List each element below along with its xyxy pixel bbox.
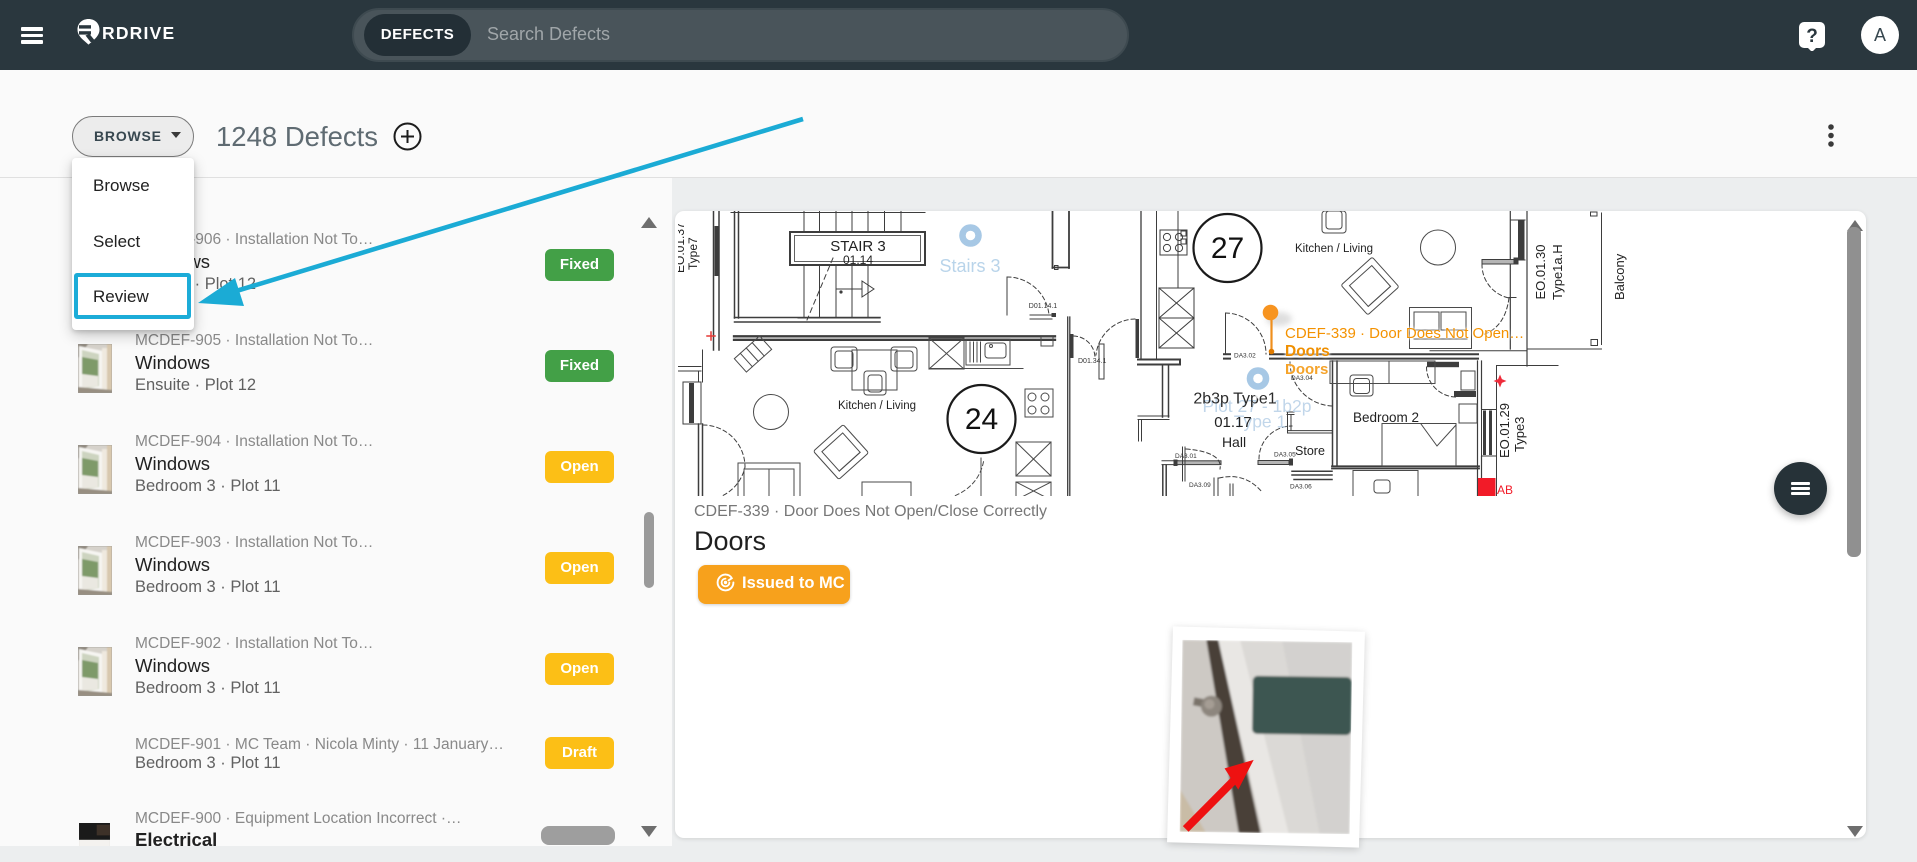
svg-text:Kitchen / Living: Kitchen / Living bbox=[1295, 243, 1373, 255]
svg-text:DA3.02: DA3.02 bbox=[1234, 353, 1256, 360]
svg-text:Type3: Type3 bbox=[1512, 417, 1527, 452]
svg-text:RDRIVE: RDRIVE bbox=[102, 23, 175, 43]
svg-text:DA3.06: DA3.06 bbox=[1290, 484, 1312, 491]
svg-text:?: ? bbox=[1806, 26, 1818, 47]
svg-text:Store: Store bbox=[1295, 444, 1325, 458]
svg-text:Doors: Doors bbox=[1285, 343, 1330, 360]
svg-text:D01.14.1: D01.14.1 bbox=[1029, 303, 1058, 310]
svg-text:Hall: Hall bbox=[1222, 434, 1246, 450]
svg-text:Bedroom 2: Bedroom 2 bbox=[1353, 410, 1419, 425]
svg-text:24: 24 bbox=[965, 403, 998, 436]
svg-text:01.14: 01.14 bbox=[843, 253, 873, 267]
svg-text:CDEF-339 · Door Does Not Open…: CDEF-339 · Door Does Not Open… bbox=[1285, 325, 1524, 342]
svg-text:DA3.05: DA3.05 bbox=[1274, 452, 1296, 459]
svg-text:Type1a.H: Type1a.H bbox=[1550, 244, 1565, 300]
svg-text:01.17: 01.17 bbox=[1214, 414, 1252, 431]
svg-text:Balcony: Balcony bbox=[1612, 253, 1627, 300]
svg-text:EO.01.29: EO.01.29 bbox=[1497, 403, 1512, 458]
svg-text:27: 27 bbox=[1211, 232, 1244, 265]
svg-text:AB: AB bbox=[1497, 483, 1513, 496]
svg-text:EO.01.30: EO.01.30 bbox=[1533, 245, 1548, 300]
svg-text:DA3.09: DA3.09 bbox=[1189, 482, 1211, 489]
svg-text:D01.34.1: D01.34.1 bbox=[1078, 358, 1107, 365]
svg-text:Stairs 3: Stairs 3 bbox=[939, 256, 1000, 276]
svg-text:Kitchen / Living: Kitchen / Living bbox=[838, 400, 916, 412]
svg-text:DA3.01: DA3.01 bbox=[1175, 453, 1197, 460]
svg-text:Doors: Doors bbox=[1285, 361, 1328, 378]
